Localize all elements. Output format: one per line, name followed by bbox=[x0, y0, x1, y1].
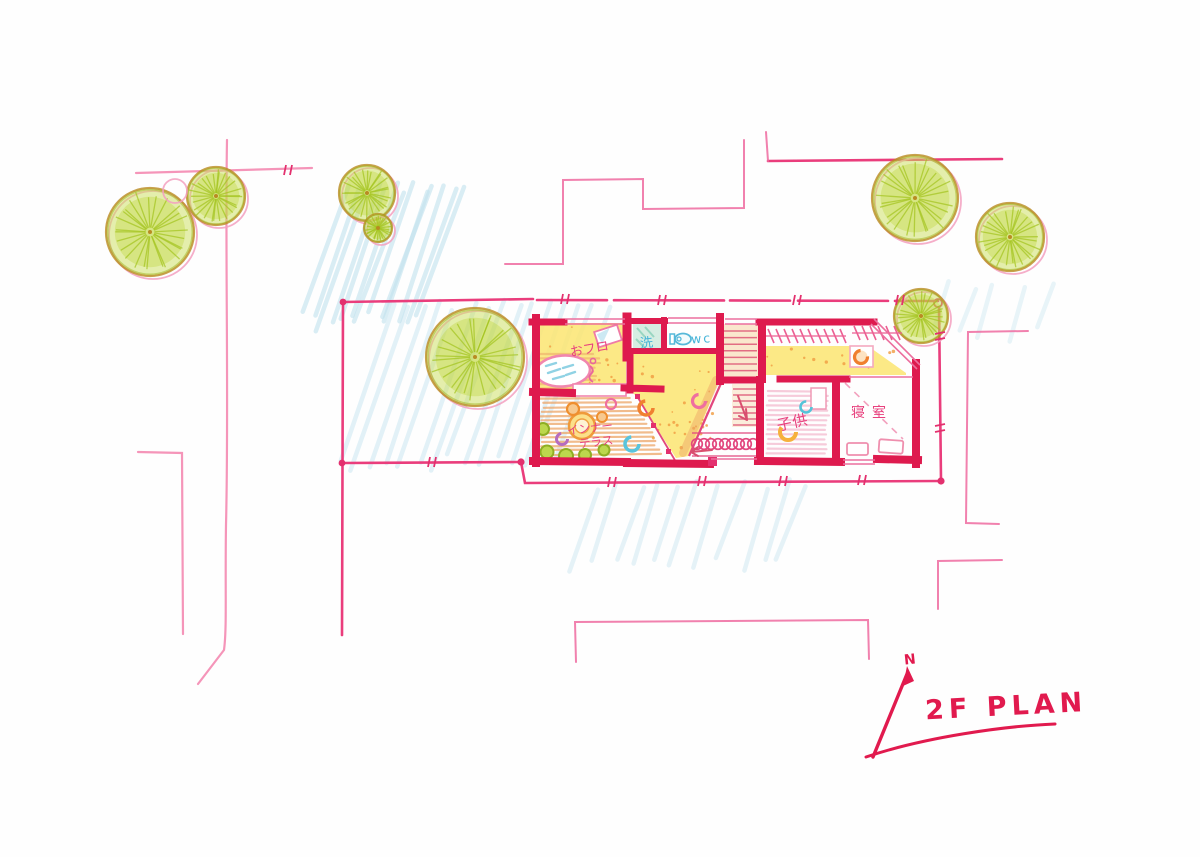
pencil-hatch bbox=[569, 479, 805, 571]
stove-swirl bbox=[855, 351, 868, 364]
vanity-counter bbox=[573, 384, 626, 396]
futon bbox=[879, 439, 904, 454]
title-block: N 2F PLAN bbox=[866, 651, 1088, 757]
floor-plan-sketch: おフロ 洗 wc インナー テラス 子供 寝室 N 2F PLAN bbox=[0, 0, 1200, 857]
plant bbox=[541, 446, 554, 459]
house-plan: おフロ 洗 wc インナー テラス 子供 寝室 bbox=[532, 317, 920, 466]
survey-dot bbox=[937, 477, 944, 484]
survey-dot bbox=[517, 458, 524, 465]
corridor-floor bbox=[763, 346, 906, 375]
desk bbox=[811, 388, 826, 409]
post-dot bbox=[635, 394, 640, 399]
neighbor-outline bbox=[505, 140, 744, 264]
toilet-tank bbox=[670, 334, 675, 344]
survey-dot bbox=[340, 299, 347, 306]
chair bbox=[567, 403, 579, 415]
tree bbox=[976, 203, 1047, 274]
plan-title: 2F PLAN bbox=[924, 687, 1088, 726]
neighbor-outline bbox=[966, 331, 1028, 524]
north-label: N bbox=[903, 651, 916, 668]
sketch-page: おフロ 洗 wc インナー テラス 子供 寝室 N 2F PLAN bbox=[0, 0, 1200, 857]
neighbor-outline bbox=[766, 132, 768, 161]
title-underline bbox=[866, 724, 1055, 757]
north-arrow bbox=[873, 674, 907, 757]
boundary-line bbox=[342, 462, 520, 463]
stair-coil-railing bbox=[692, 433, 759, 456]
room-label-laundry: 洗 bbox=[639, 335, 654, 351]
stair-flight-lower bbox=[732, 384, 758, 427]
boundary-line bbox=[768, 159, 1002, 161]
post-dot bbox=[651, 423, 656, 428]
tree bbox=[106, 188, 197, 279]
neighbor-outline bbox=[575, 620, 869, 662]
boundary-line bbox=[342, 302, 343, 635]
neighbor-outline bbox=[938, 560, 1002, 609]
boundary-line bbox=[537, 300, 938, 301]
site-line bbox=[138, 452, 183, 634]
room-label-wc: wc bbox=[691, 330, 713, 346]
room-label-bedroom: 寝室 bbox=[851, 404, 893, 421]
futon bbox=[847, 443, 868, 455]
tree bbox=[426, 308, 527, 409]
post-dot bbox=[666, 449, 671, 454]
tree bbox=[187, 167, 248, 228]
tree bbox=[872, 155, 961, 244]
survey-dot bbox=[339, 460, 346, 467]
